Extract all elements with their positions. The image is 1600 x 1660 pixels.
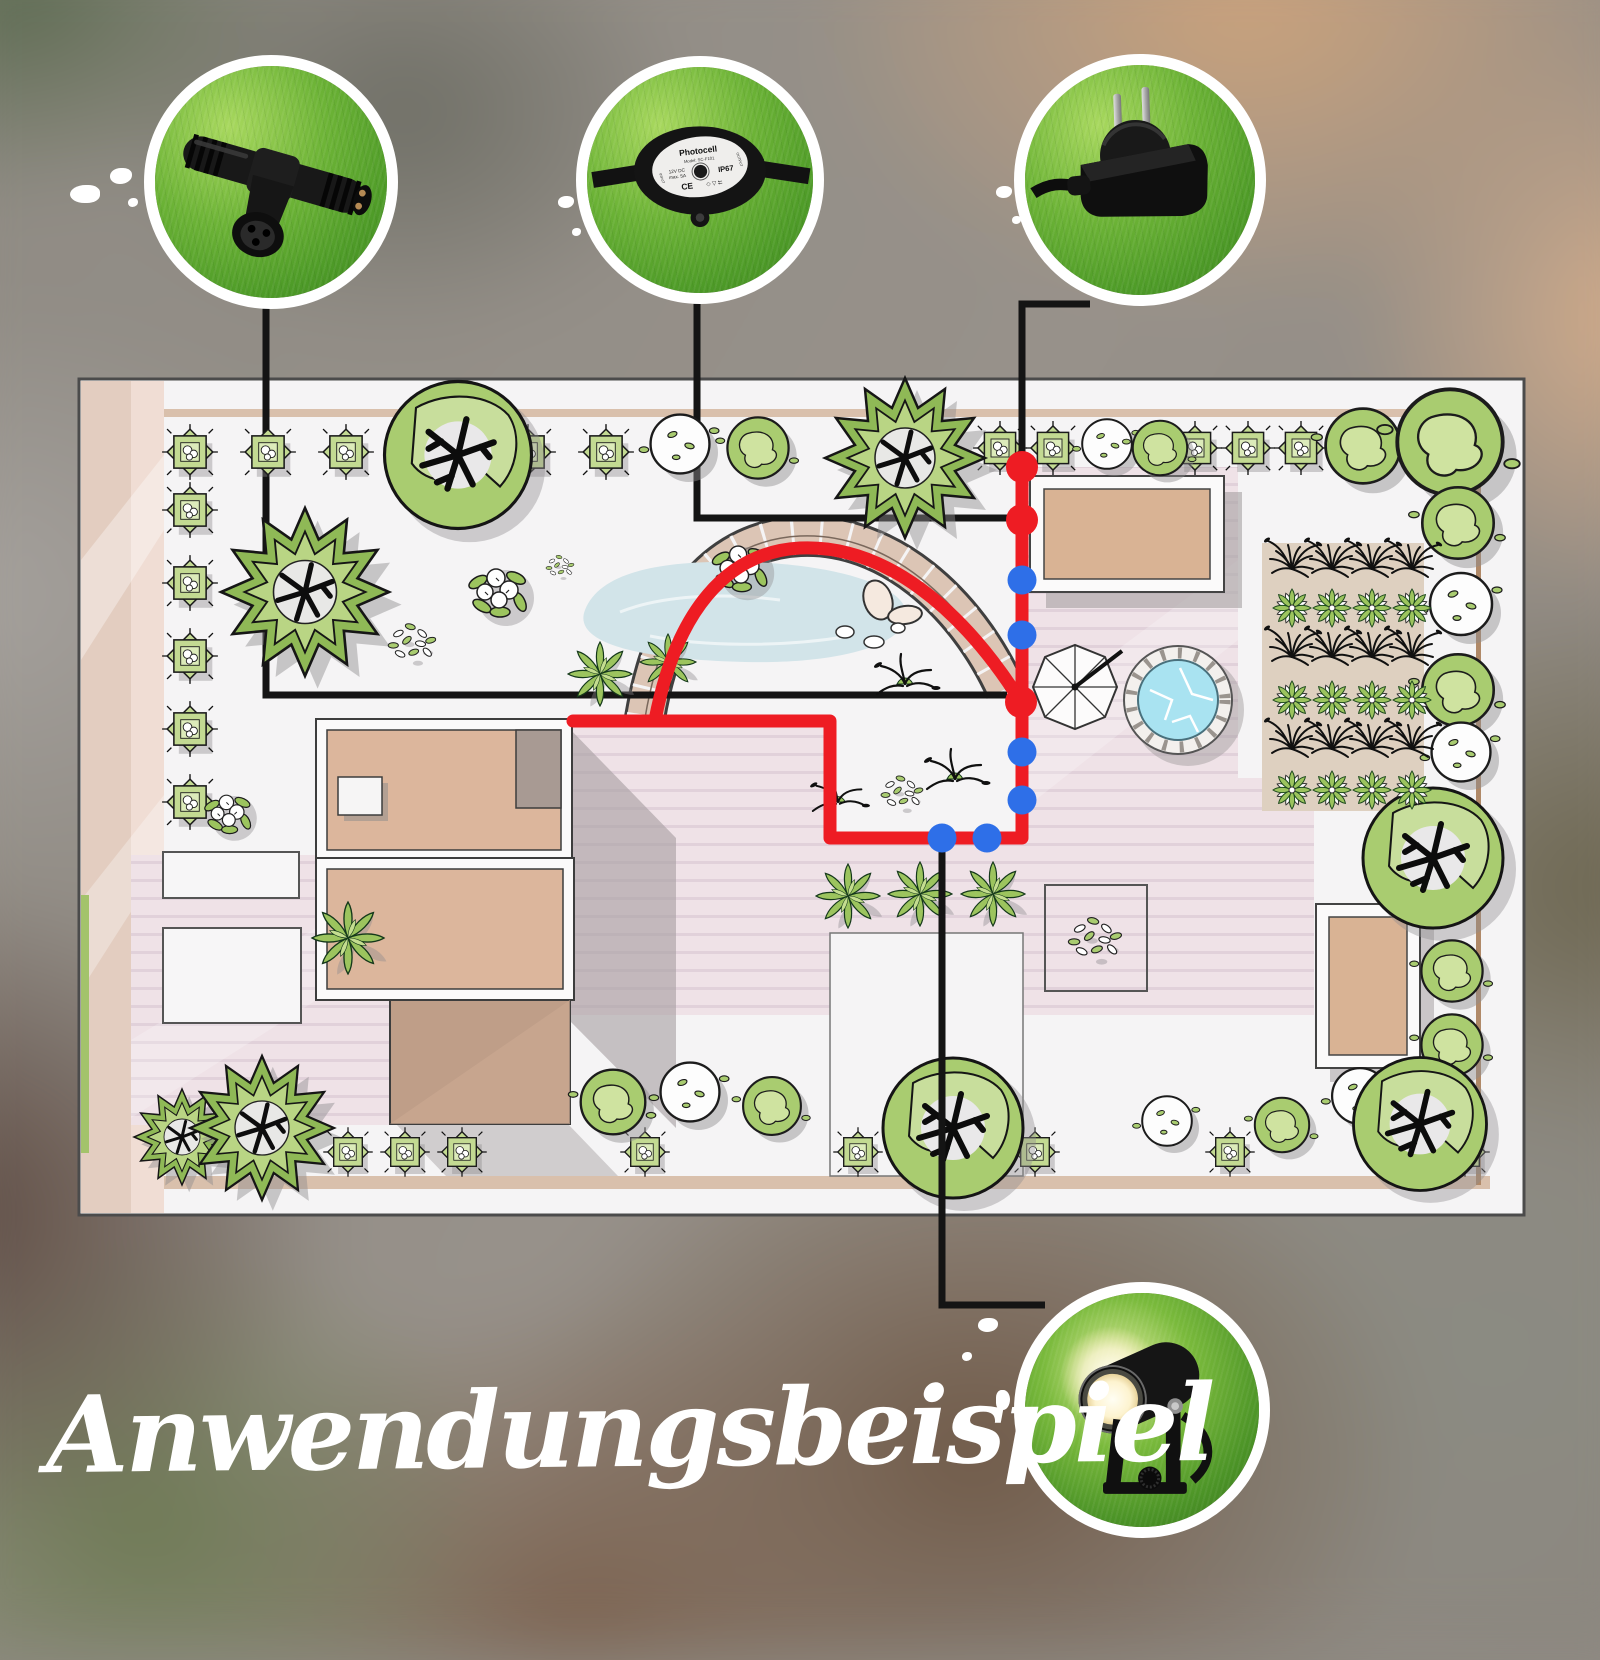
plant-sq — [380, 1127, 430, 1177]
plant-sq — [240, 424, 296, 480]
paint-splash — [70, 185, 100, 203]
plant-sq — [833, 1127, 883, 1177]
photocell-sensor-icon: Photocell Model: SC-F101 12V DC max. 5A … — [587, 67, 813, 293]
plant-sq — [162, 482, 218, 538]
lamp-position-dot-blue — [928, 824, 957, 853]
plant-sq — [162, 555, 218, 611]
svg-text:CE: CE — [681, 181, 694, 192]
t-connector-icon — [155, 66, 387, 298]
plant-sq — [578, 424, 634, 480]
t-connector-photo — [144, 55, 398, 309]
lamp-position-dot-blue — [1008, 738, 1037, 767]
photocell-photo: Photocell Model: SC-F101 12V DC max. 5A … — [576, 56, 824, 304]
lamp-position-dot-blue — [1008, 566, 1037, 595]
svg-text:IP67: IP67 — [718, 163, 734, 174]
cable-connection-dot-red — [1005, 686, 1037, 718]
cable-connection-dot-red — [1006, 504, 1038, 536]
plant-sq — [1221, 421, 1275, 475]
plant-sq — [323, 1127, 373, 1177]
plant-sq — [437, 1127, 487, 1177]
page-title: Anwendungsbeispiel — [45, 1360, 1213, 1497]
plant-sq — [162, 701, 218, 757]
power-plug-photo — [1014, 54, 1266, 306]
cable-connection-dot-red — [1006, 451, 1038, 483]
plant-sq — [1205, 1127, 1255, 1177]
power-plug-icon — [1025, 65, 1255, 295]
plant-sq — [318, 424, 374, 480]
plant-sq — [162, 628, 218, 684]
lamp-position-dot-blue — [1008, 786, 1037, 815]
plant-sq — [162, 424, 218, 480]
plant-sq — [1274, 421, 1328, 475]
lamp-position-dot-blue — [1008, 621, 1037, 650]
lamp-position-dot-blue — [973, 824, 1002, 853]
